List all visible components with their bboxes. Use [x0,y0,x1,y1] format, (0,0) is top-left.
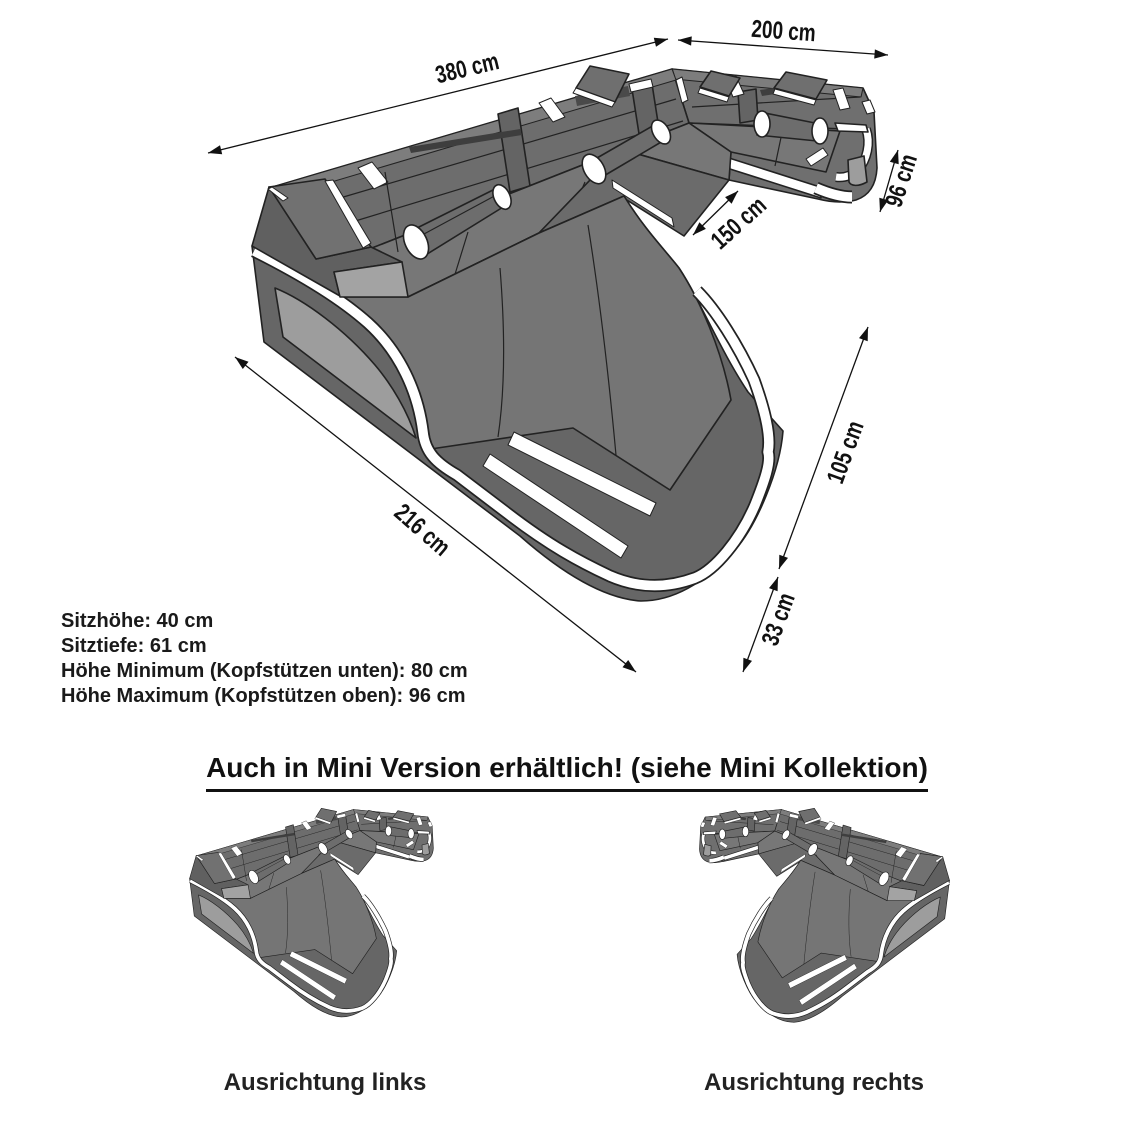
svg-text:150 cm: 150 cm [705,191,772,255]
svg-text:96 cm: 96 cm [879,150,922,210]
svg-text:33 cm: 33 cm [756,589,801,649]
svg-text:105 cm: 105 cm [821,417,869,487]
svg-text:216 cm: 216 cm [389,498,456,561]
svg-text:200 cm: 200 cm [750,14,816,46]
